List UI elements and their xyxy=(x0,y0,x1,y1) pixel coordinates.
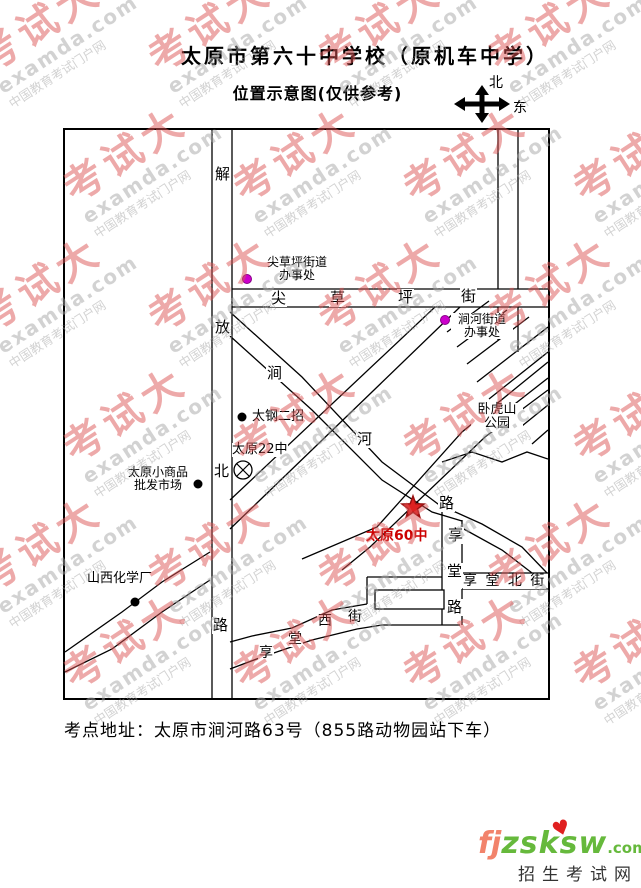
watermark-tile: 考试大examda.com中国教育考试门户网 xyxy=(567,574,641,729)
watermark-slogan: 中国教育考试门户网 xyxy=(601,140,641,242)
jianhe-road-char-2: 河 xyxy=(356,431,373,448)
map-canvas: 解 放 北 路 尖 草 坪 街 涧 河 路 享 堂 路 享 堂 北 街 享 堂 … xyxy=(63,128,550,700)
school22-symbol-icon xyxy=(234,461,252,479)
jh-office-label: 涧河街道 办事处 xyxy=(451,313,513,339)
xiangtang-west-char-1: 享 xyxy=(258,646,274,661)
xiangtang-west-char-4: 街 xyxy=(347,610,363,625)
jcp-office-label: 尖草坪街道 办事处 xyxy=(265,256,329,282)
jianhe-road-char-3: 路 xyxy=(438,495,455,512)
taigang-dot xyxy=(238,413,247,422)
watermark-brand: 考试大 xyxy=(567,87,641,209)
compass-east-label: 东 xyxy=(513,97,527,117)
market-label: 太原小商品 批发市场 xyxy=(125,466,191,492)
jianhe-road-char-1: 涧 xyxy=(266,365,283,382)
compass-rose-icon xyxy=(453,84,513,126)
watermark-domain: examda.com xyxy=(588,381,641,489)
watermark-slogan: 中国教育考试门户网 xyxy=(601,400,641,502)
xiangtang-west-char-2: 堂 xyxy=(287,632,303,647)
exam-site-address: 考点地址：太原市涧河路63号（855路动物园站下车） xyxy=(64,716,501,741)
chemical-plant-label: 山西化学厂 xyxy=(87,572,152,586)
watermark-domain: examda.com xyxy=(588,608,641,716)
xiangtang-north-street-label: 享 堂 北 街 xyxy=(463,574,546,589)
logo-fj: fj xyxy=(478,826,501,861)
watermark-slogan: 中国教育考试门户网 xyxy=(6,10,151,112)
watermark-brand: 考试大 xyxy=(567,347,641,469)
jiancaoping-street-char-3: 坪 xyxy=(397,289,414,306)
page-title: 太原市第六十中学校（原机车中学） xyxy=(150,40,580,69)
xiangtang-road-char-3: 路 xyxy=(446,599,463,616)
watermark-tile: 考试大examda.com中国教育考试门户网 xyxy=(567,87,641,242)
park-label: 卧虎山 公园 xyxy=(471,403,523,432)
jcp-office-dot xyxy=(243,275,252,284)
school60-label: 太原60中 xyxy=(366,529,427,544)
jiefang-road-char-1: 解 xyxy=(214,166,231,183)
jiancaoping-street-char-2: 草 xyxy=(329,290,346,307)
page: 太原市第六十中学校（原机车中学） 位置示意图(仅供参考) 北 东 xyxy=(0,0,641,888)
watermark-domain: examda.com xyxy=(0,0,142,98)
logo-subtitle: 招生考试网 xyxy=(518,860,638,885)
watermark-tile: 考试大examda.com中国教育考试门户网 xyxy=(0,0,151,112)
market-dot xyxy=(194,480,203,489)
watermark-brand: 考试大 xyxy=(0,0,130,79)
watermark-slogan: 中国教育考试门户网 xyxy=(601,627,641,729)
jiefang-road-char-2: 放 xyxy=(214,319,231,336)
page-subtitle: 位置示意图(仅供参考) xyxy=(200,80,435,104)
site-logo: fjzsksw.com ♥ 招生考试网 xyxy=(478,822,641,886)
xiangtang-road-char-1: 享 xyxy=(447,527,464,544)
taigang-label: 太钢二招 xyxy=(252,410,304,424)
xiangtang-west-char-3: 西 xyxy=(317,614,333,629)
chemical-dot xyxy=(131,598,140,607)
logo-com: .com xyxy=(607,839,641,857)
watermark-domain: examda.com xyxy=(588,121,641,229)
taiyuan22-label: 太原22中 xyxy=(232,443,288,457)
jiancaoping-street-char-4: 街 xyxy=(460,288,477,305)
jiancaoping-street-char-1: 尖 xyxy=(270,290,287,307)
jiefang-road-char-3: 北 xyxy=(213,463,230,480)
xiangtang-road-char-2: 堂 xyxy=(446,563,463,580)
watermark-tile: 考试大examda.com中国教育考试门户网 xyxy=(567,347,641,502)
jiefang-road-char-4: 路 xyxy=(212,617,229,634)
jh-office-dot xyxy=(441,316,450,325)
watermark-brand: 考试大 xyxy=(567,574,641,696)
